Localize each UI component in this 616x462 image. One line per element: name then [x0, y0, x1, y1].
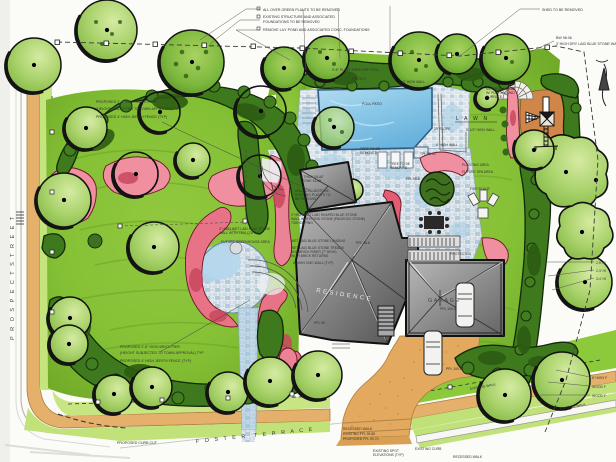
svg-text:EXISTING FFL 99.85: EXISTING FFL 99.85 — [343, 432, 375, 436]
svg-text:PROPOSED CURB CUT: PROPOSED CURB CUT — [117, 441, 158, 445]
svg-text:PPL 99: PPL 99 — [314, 321, 325, 325]
svg-text:3-4' HI: 3-4' HI — [596, 277, 606, 281]
svg-text:FUTURE SPA AREA: FUTURE SPA AREA — [462, 170, 494, 174]
svg-text:EXISTING CURB: EXISTING CURB — [415, 447, 442, 451]
svg-text:2.5' HI: 2.5' HI — [596, 261, 606, 265]
svg-text:8' HIGH CMC WALL (TYP): 8' HIGH CMC WALL (TYP) — [293, 261, 333, 265]
svg-text:(HEIGHT SUBJECTED TO TOWN APPR: (HEIGHT SUBJECTED TO TOWN APPROVAL) TYP — [120, 351, 204, 355]
svg-text:TPL 98.95: TPL 98.95 — [420, 152, 436, 156]
svg-text:FUTURE GREENHOUSE AREA: FUTURE GREENHOUSE AREA — [221, 240, 271, 244]
svg-text:8' HIGH WALL: 8' HIGH WALL — [436, 143, 458, 147]
svg-text:8' HIGH F: 8' HIGH F — [592, 376, 607, 380]
svg-text:WET LAID BLUE STONE LANDING: WET LAID BLUE STONE LANDING — [291, 239, 346, 243]
svg-text:PPL 100.0: PPL 100.0 — [440, 307, 456, 311]
svg-text:ALL OVER GREEN PLANTS TO BE RE: ALL OVER GREEN PLANTS TO BE REMOVED — [263, 8, 340, 12]
svg-text:WALL WITH 7300 COPING: WALL WITH 7300 COPING — [219, 231, 261, 235]
svg-text:SHED TO BE REMOVED: SHED TO BE REMOVED — [542, 8, 583, 12]
svg-text:FIRE PLACE: FIRE PLACE — [470, 187, 491, 191]
svg-text:FPL 98.8: FPL 98.8 — [406, 177, 420, 181]
svg-text:7300 COPING: 7300 COPING — [291, 221, 313, 225]
svg-text:PROPOSED 4' HIGH JERITH FENCE: PROPOSED 4' HIGH JERITH FENCE (TYP) — [120, 359, 191, 363]
svg-text:WOOD F: WOOD F — [592, 385, 606, 389]
svg-text:REMOVE LILY POND AND ASSOCIATE: REMOVE LILY POND AND ASSOCIATED CONC. FO… — [263, 28, 370, 32]
svg-text:WOOD F: WOOD F — [592, 394, 606, 398]
svg-text:PPL 98.6: PPL 98.6 — [356, 241, 370, 245]
svg-text:BE REMOVED: BE REMOVED — [295, 197, 318, 201]
svg-text:L A W N: L A W N — [456, 116, 489, 122]
svg-text:PROPOSED FFL 99.70: PROPOSED FFL 99.70 — [343, 437, 379, 441]
svg-text:REMOVED: REMOVED — [390, 166, 408, 170]
svg-text:RECESSED WALK: RECESSED WALK — [453, 455, 483, 459]
svg-text:REMOVED: REMOVED — [360, 151, 378, 155]
svg-text:2-3' HI: 2-3' HI — [596, 269, 606, 273]
svg-text:25' SLOPE: 25' SLOPE — [434, 127, 451, 131]
svg-text:9'-6" PLANT AREA FOR POOL: 9'-6" PLANT AREA FOR POOL — [332, 68, 379, 72]
svg-text:FOUNDATIONS TO BE REMOVED: FOUNDATIONS TO BE REMOVED — [263, 20, 320, 24]
svg-text:STONE SLAB: STONE SLAB — [300, 179, 322, 183]
svg-text:PROTECTED: PROTECTED — [450, 252, 471, 256]
svg-text:8'-1/2" HIGH WALL: 8'-1/2" HIGH WALL — [466, 128, 495, 132]
svg-text:2'-6" HIGH WALL: 2'-6" HIGH WALL — [399, 80, 425, 84]
svg-text:(HEIGHT SUBJECTED TO TOWN APPR: (HEIGHT SUBJECTED TO TOWN APPROVAL) TYP — [96, 107, 180, 111]
svg-text:PLANTING AREA: PLANTING AREA — [462, 163, 490, 167]
svg-text:P R O S P E C T S T R E E T: P R O S P E C T S T R E E T — [10, 215, 16, 340]
svg-text:PROPOSED 4' HIGH JERITH FENCE: PROPOSED 4' HIGH JERITH FENCE (TYP) — [96, 115, 167, 119]
svg-text:RECESSED WALK: RECESSED WALK — [343, 427, 373, 431]
svg-text:FPL 99.0: FPL 99.0 — [352, 77, 366, 81]
svg-text:WITH BRICK RETURNS: WITH BRICK RETURNS — [291, 254, 329, 258]
svg-text:POOL PATIO: POOL PATIO — [362, 102, 382, 106]
svg-text:SURFACE: SURFACE — [486, 95, 503, 99]
svg-text:PROPOSED 2'-6" HIGH BRICK PIER: PROPOSED 2'-6" HIGH BRICK PIER — [96, 100, 156, 104]
svg-text:3' HIGH DRY LAID BLUE STONE WA: 3' HIGH DRY LAID BLUE STONE WALL — [556, 42, 616, 46]
svg-text:EXISTING STRUCTURE AND ASSOCIA: EXISTING STRUCTURE AND ASSOCIATED — [263, 15, 335, 19]
svg-text:ELEVATIONS (TYP): ELEVATIONS (TYP) — [373, 453, 404, 457]
svg-text:PPL 100.2: PPL 100.2 — [446, 367, 462, 371]
svg-text:BW 98.06: BW 98.06 — [556, 36, 572, 40]
svg-text:GARAGE: GARAGE — [428, 298, 461, 304]
